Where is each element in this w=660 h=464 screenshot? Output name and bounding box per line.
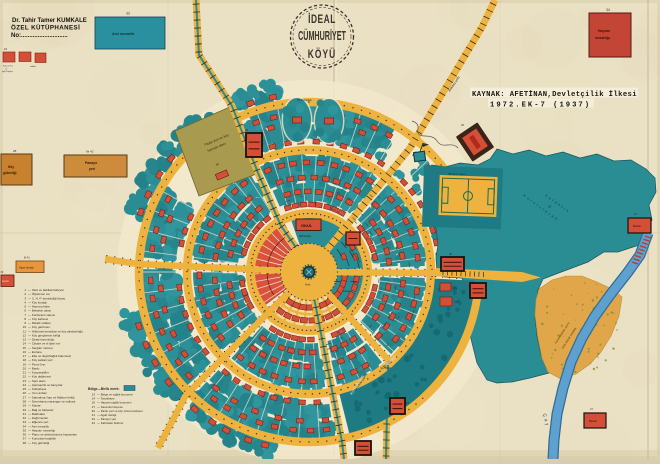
- svg-text:Bölge—Birlik merk:: Bölge—Birlik merk:: [88, 387, 119, 391]
- svg-text:OKUL: OKUL: [301, 223, 313, 228]
- svg-text:38 Spor alanı: 38 Spor alanı: [448, 172, 466, 176]
- svg-text:mezarlığı: mezarlığı: [595, 36, 610, 40]
- svg-text:44: 44: [92, 421, 96, 425]
- svg-text:mezat: mezat: [2, 280, 9, 283]
- svg-text:KAYNAK: AFETİNAN,Devletçilik İ: KAYNAK: AFETİNAN,Devletçilik İlkesi: [472, 90, 637, 99]
- svg-text:İDEAL: İDEAL: [308, 11, 336, 26]
- svg-text:№ 42: № 42: [86, 150, 94, 154]
- svg-text:— Kabristan bölümü: — Kabristan bölümü: [97, 421, 124, 425]
- svg-text:Agah durağı: Agah durağı: [19, 266, 34, 270]
- svg-text:Dr. Tahir Tamer KUMKALE: Dr. Tahir Tamer KUMKALE: [12, 18, 87, 24]
- svg-text:Panayır: Panayır: [85, 161, 98, 165]
- svg-text:gübreliği: gübreliği: [3, 171, 17, 175]
- svg-text:16: 16: [4, 47, 8, 51]
- svg-text:36a: 36a: [453, 287, 458, 290]
- svg-text:33: 33: [126, 12, 130, 16]
- svg-text:KÖYÜ: KÖYÜ: [308, 47, 336, 62]
- svg-text:odalar: odalar: [30, 65, 36, 68]
- svg-text:B 41: B 41: [24, 256, 30, 260]
- svg-text:yeri: yeri: [89, 167, 95, 171]
- svg-text:34: 34: [606, 8, 610, 12]
- svg-text:36b: 36b: [454, 301, 459, 304]
- svg-text:Hayvan: Hayvan: [598, 29, 610, 33]
- svg-text:Köy: Köy: [8, 165, 14, 169]
- svg-text:1972.EK-7 (1937): 1972.EK-7 (1937): [490, 102, 591, 110]
- svg-text:Köy ve Tic: Köy ve Tic: [3, 66, 14, 68]
- svg-text:Anıt: Anıt: [305, 283, 311, 287]
- svg-text:Asri mezarlık: Asri mezarlık: [112, 32, 134, 36]
- svg-text:32 Fidanlık: 32 Fidanlık: [297, 98, 312, 102]
- svg-text:No:...........................: No:............................: [11, 33, 68, 39]
- svg-text:37: 37: [548, 205, 552, 209]
- svg-text:ilgili Köyevi: ilgili Köyevi: [2, 71, 13, 73]
- svg-text:38: 38: [23, 441, 27, 445]
- svg-text:28: 28: [13, 149, 17, 153]
- svg-text:— Köy gübreliği: — Köy gübreliği: [28, 441, 50, 445]
- svg-text:Milli bahçe: Milli bahçe: [299, 234, 312, 238]
- svg-text:Bostan: Bostan: [589, 419, 598, 423]
- svg-text:Bostan: Bostan: [633, 224, 642, 228]
- svg-text:ÖZEL KÜTÜPHANESİ: ÖZEL KÜTÜPHANESİ: [11, 25, 80, 32]
- svg-text:CÜMHURİYET: CÜMHURİYET: [298, 28, 346, 44]
